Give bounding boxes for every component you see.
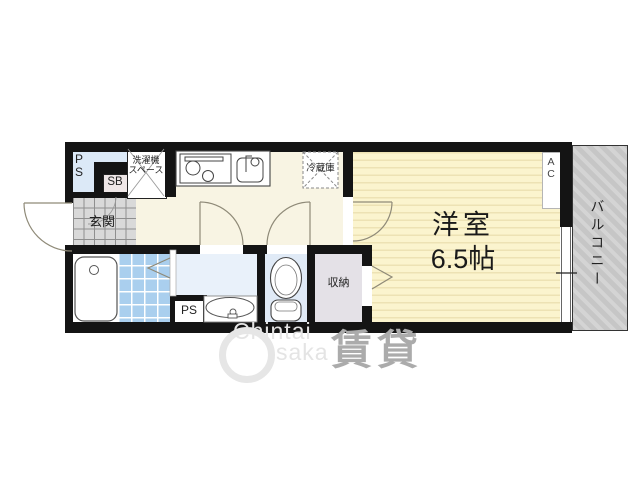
balcony-label: バルコニー [589,199,604,309]
entrance-label: 玄関 [73,215,131,229]
watermark-circle-o [219,327,275,383]
kitchen-counter [176,151,270,186]
washer-space-label: 洗濯機 スペース [127,156,165,176]
toilet-door-swing [267,202,310,245]
bath-folding-door [148,258,170,278]
toilet-icon [271,258,302,322]
window-symbol [556,227,577,322]
main-room-size: 6.5帖 [378,245,548,275]
closet-label: 収納 [315,277,362,289]
floorplan-canvas: P S SB 洗濯機 スペース 玄関 冷蔵庫 洋室 6.5帖 A C バルコニー… [0,0,640,480]
watermark-kanji: 賃貸 [331,316,423,376]
shoe-box-label: SB [103,176,127,189]
pipe-space-top-label: P S [75,153,83,179]
fridge-label: 冷蔵庫 [303,164,338,174]
pipe-space-bottom-label: PS [175,304,203,317]
watermark-saka: saka [276,339,329,366]
washroom-door-swing [200,202,243,245]
entry-door-swing [24,203,72,251]
main-room-name: 洋室 [378,211,548,241]
bath-door-frame [170,250,176,296]
bathtub-icon [75,257,117,321]
ac-unit-label: A C [542,157,560,180]
